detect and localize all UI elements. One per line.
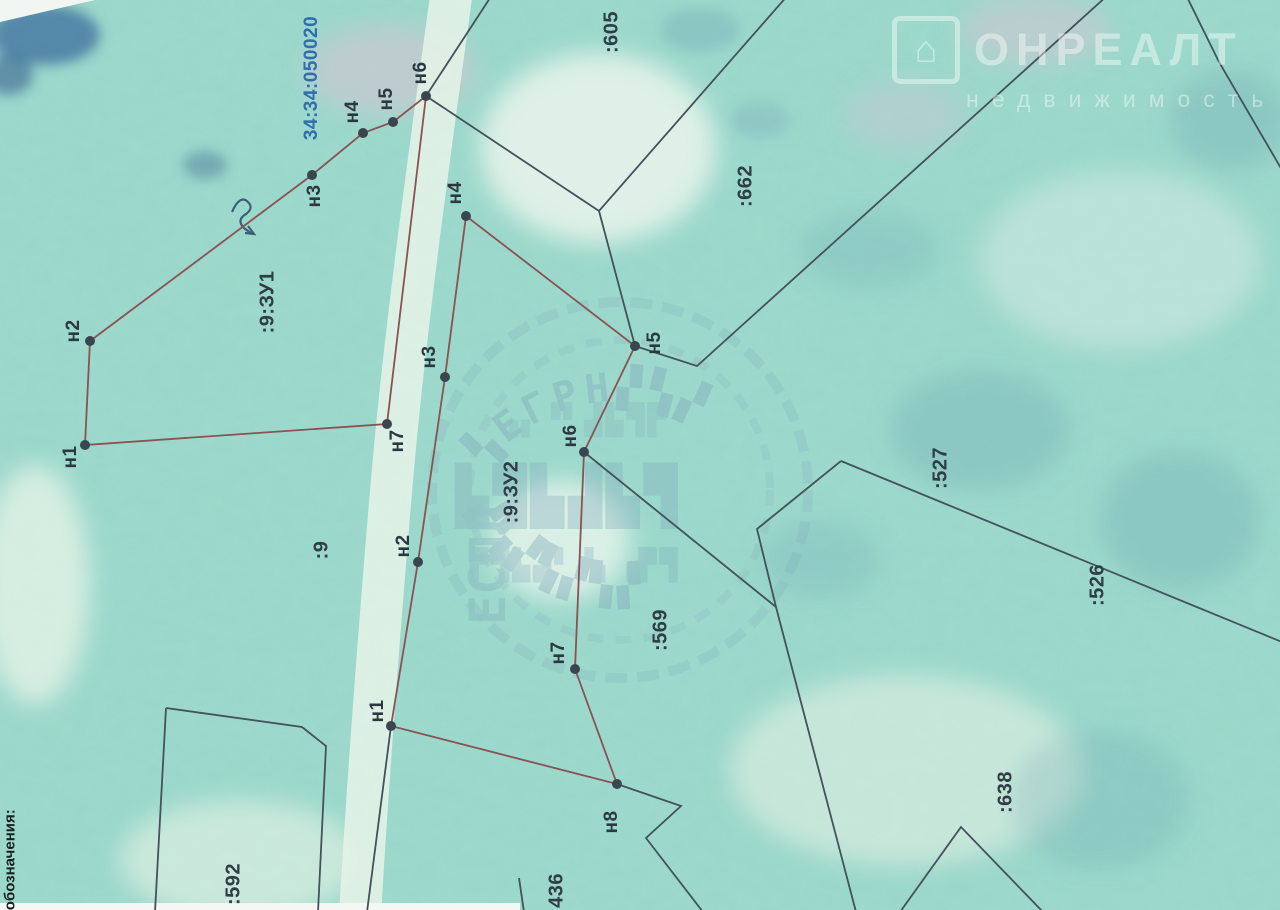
boundary-point-dot	[570, 664, 580, 674]
legend-caption-fragment: е обозначения:	[2, 809, 19, 910]
aerial-photo-background	[0, 0, 1280, 910]
boundary-point-dot	[382, 419, 392, 429]
agency-watermark-logo: ⌂ ОНРЕАЛТ недвижимость	[892, 16, 1278, 113]
boundary-point-dot	[461, 211, 471, 221]
svg-text:▗▖▝▘▟▙▜▛: ▗▖▝▘▟▙▜▛	[500, 401, 669, 438]
boundary-point-dot	[413, 557, 423, 567]
boundary-point-dot	[421, 91, 431, 101]
boundary-point-dot	[579, 447, 589, 457]
map-canvas: ▚ЕГРН▞▚▞ ▞▚▞▚▞▚▞ ▙▜▙▟▙▜ ▛▜▙▟▘▝▖▗▛▜ ▗▖▝▘▟…	[0, 0, 1280, 910]
house-icon: ⌂	[892, 16, 960, 84]
logo-word: ОНРЕАЛТ	[974, 24, 1243, 76]
boundary-point-dot	[612, 779, 622, 789]
boundary-point-dot	[80, 440, 90, 450]
boundary-point-dot	[386, 721, 396, 731]
boundary-point-dot	[440, 372, 450, 382]
boundary-point-dot	[85, 336, 95, 346]
svg-text:ЕСПЛ: ЕСПЛ	[459, 505, 517, 625]
logo-tagline: недвижимость	[966, 86, 1278, 113]
boundary-point-dot	[630, 341, 640, 351]
scanned-cadastral-map-page: ▚ЕГРН▞▚▞ ▞▚▞▚▞▚▞ ▙▜▙▟▙▜ ▛▜▙▟▘▝▖▗▛▜ ▗▖▝▘▟…	[0, 0, 1280, 910]
boundary-point-dot	[307, 170, 317, 180]
boundary-point-dot	[388, 117, 398, 127]
boundary-point-dot	[358, 128, 368, 138]
